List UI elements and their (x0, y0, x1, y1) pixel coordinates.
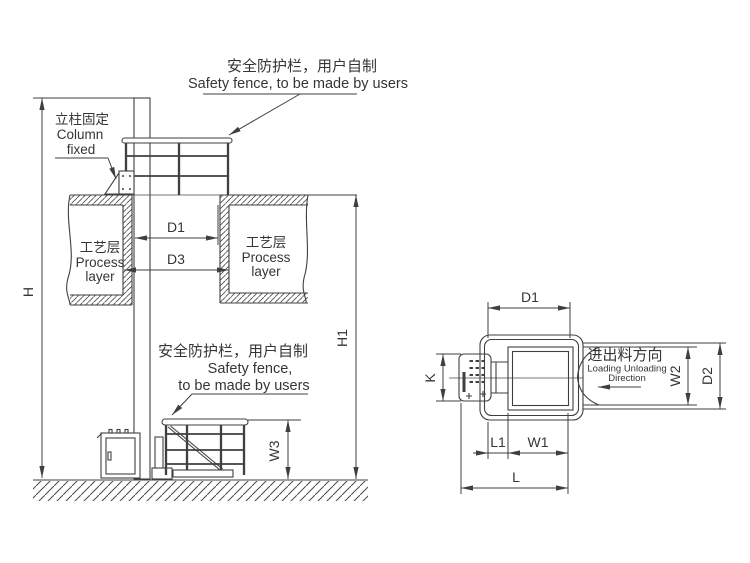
control-cabinet (97, 430, 140, 479)
plus-marks (466, 391, 486, 399)
column-fixing-bracket (105, 171, 134, 194)
cage-base (173, 470, 233, 477)
door-handle (108, 452, 111, 460)
technical-drawing-page: 工艺层 Process layer 工艺层 Process layer (0, 0, 750, 563)
dim-label-l: L (512, 469, 520, 485)
door-swing-arc (578, 377, 600, 405)
dim-label-d1-plan: D1 (521, 289, 539, 305)
dimension-W2: W2 (667, 347, 688, 405)
elevation-view: 工艺层 Process layer 工艺层 Process layer (20, 57, 408, 501)
base-foot (152, 468, 172, 479)
slab-left-label-en2: layer (85, 269, 115, 284)
leader-line (108, 158, 116, 179)
dimension-K: K (422, 354, 461, 401)
leader-line (172, 394, 192, 415)
dimension-D1-plan: D1 (488, 289, 570, 338)
dim-label-d1: D1 (167, 219, 185, 235)
note-column-en2: fixed (67, 142, 96, 157)
note-safety-fence-top: 安全防护栏，用户自制 Safety fence, to be made by u… (188, 57, 408, 135)
ground (33, 480, 368, 501)
dimension-W3: W3 (248, 420, 301, 479)
break-line (303, 195, 308, 303)
process-layer-slab-right: 工艺层 Process layer (220, 195, 308, 303)
note-bottom-en1: Safety fence, (208, 361, 293, 377)
cage-frame-inner (485, 340, 579, 416)
cage-top-rail (162, 419, 248, 425)
slab-right-label-en2: layer (251, 264, 281, 279)
note-direction-zh: 进出料方向 (587, 347, 662, 364)
dimension-chain-bottom: L1 W1 L (461, 403, 568, 494)
leader-line (229, 94, 300, 135)
dimension-H1: H1 (308, 195, 357, 479)
dim-label-w3: W3 (266, 440, 282, 461)
platform-outer (508, 347, 573, 410)
slab-right-label-en1: Process (242, 250, 291, 265)
dim-label-w1: W1 (528, 434, 549, 450)
break-line (67, 195, 72, 305)
note-column-zh: 立柱固定 (55, 112, 109, 127)
note-bottom-en2: to be made by users (178, 378, 309, 394)
note-safety-fence-bottom: 安全防护栏，用户自制 Safety fence, to be made by u… (158, 342, 310, 415)
lift-platform-drawing: 工艺层 Process layer 工艺层 Process layer (0, 0, 750, 563)
note-direction-en2: Direction (608, 373, 646, 384)
slab-right-label-zh: 工艺层 (246, 235, 287, 250)
slab-left-label-zh: 工艺层 (80, 240, 121, 255)
dim-label-h: H (20, 287, 36, 297)
note-column-fixed: 立柱固定 Column fixed (55, 112, 116, 179)
dim-label-d2: D2 (699, 367, 715, 385)
dim-label-k: K (422, 373, 438, 383)
dim-label-h1: H1 (334, 329, 350, 347)
mast-section (459, 354, 508, 401)
slab-left-label-en1: Process (76, 255, 125, 270)
note-loading-direction: 进出料方向 Loading Unloading Direction (587, 347, 666, 387)
dim-label-d3: D3 (167, 251, 185, 267)
note-column-en1: Column (57, 127, 104, 142)
platform-inner (513, 352, 569, 406)
ground-safety-fence (152, 419, 248, 479)
guide-rail (155, 437, 163, 470)
dimension-D2: D2 (697, 343, 726, 409)
note-bottom-zh: 安全防护栏，用户自制 (158, 342, 308, 360)
dim-label-l1: L1 (490, 434, 506, 450)
note-top-en: Safety fence, to be made by users (188, 76, 408, 92)
dim-label-w2: W2 (667, 365, 683, 386)
note-top-zh: 安全防护栏，用户自制 (227, 57, 377, 75)
process-layer-slab-left: 工艺层 Process layer (67, 195, 132, 305)
plan-view: 进出料方向 Loading Unloading Direction D1 K W… (422, 289, 726, 494)
